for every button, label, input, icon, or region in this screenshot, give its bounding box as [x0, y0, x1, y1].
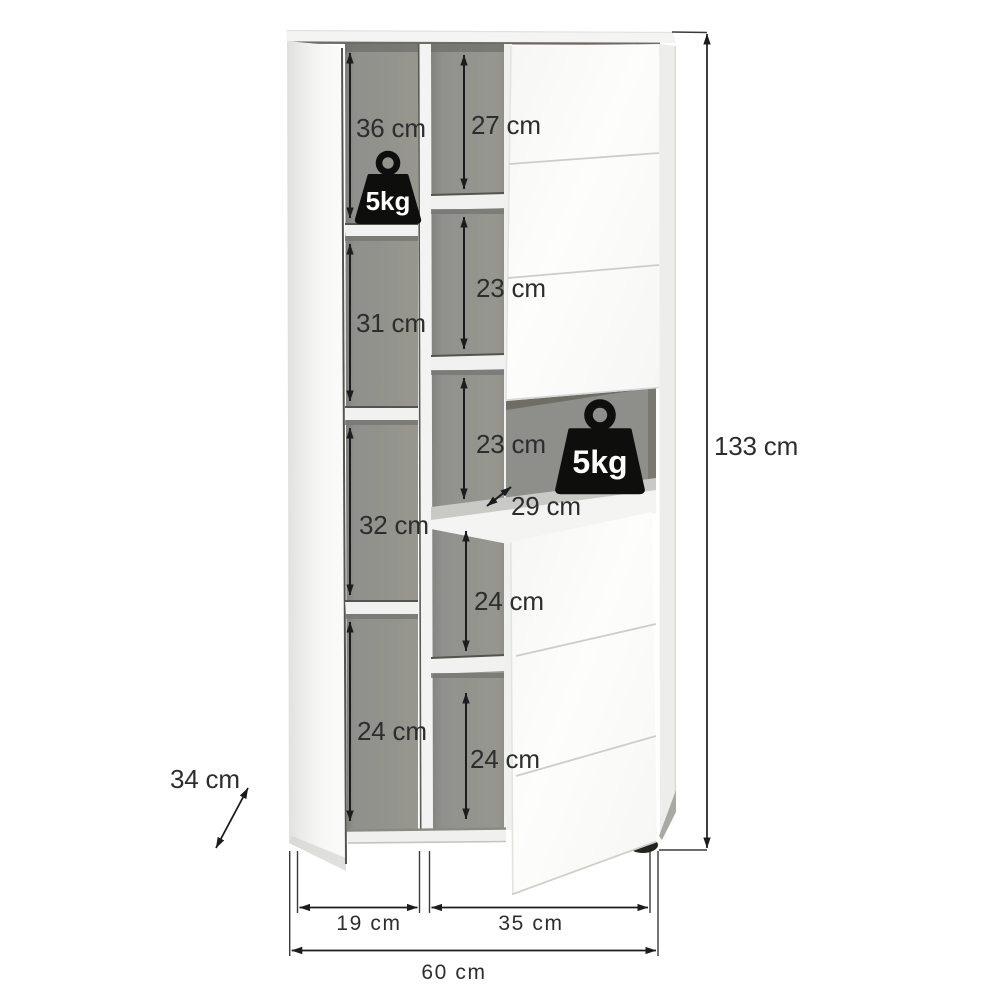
svg-text:5kg: 5kg: [366, 186, 411, 216]
svg-text:31 cm: 31 cm: [356, 308, 426, 338]
svg-text:36 cm: 36 cm: [356, 113, 426, 143]
svg-text:32 cm: 32 cm: [359, 510, 429, 540]
svg-text:23 cm: 23 cm: [476, 273, 546, 303]
svg-text:35 cm: 35 cm: [498, 912, 563, 935]
svg-text:24 cm: 24 cm: [470, 744, 540, 774]
svg-text:5kg: 5kg: [572, 444, 627, 480]
svg-text:34 cm: 34 cm: [170, 764, 240, 794]
svg-text:19 cm: 19 cm: [336, 912, 401, 935]
svg-text:24 cm: 24 cm: [474, 586, 544, 616]
svg-text:133 cm: 133 cm: [714, 431, 798, 461]
svg-text:29 cm: 29 cm: [511, 491, 581, 521]
svg-text:24 cm: 24 cm: [357, 716, 427, 746]
svg-text:60 cm: 60 cm: [421, 961, 486, 984]
svg-text:23 cm: 23 cm: [476, 429, 546, 459]
svg-text:27 cm: 27 cm: [471, 110, 541, 140]
